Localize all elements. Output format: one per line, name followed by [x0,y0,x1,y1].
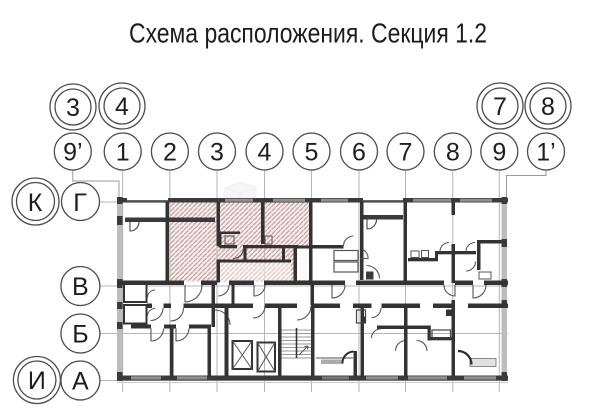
svg-text:8: 8 [446,139,460,167]
svg-text:6: 6 [352,139,366,167]
svg-text:9: 9 [492,139,506,167]
svg-text:8: 8 [541,93,555,121]
svg-text:7: 7 [493,93,507,121]
svg-text:4: 4 [258,139,272,167]
svg-text:И: И [28,367,46,395]
svg-text:Г: Г [73,189,87,217]
svg-text:3: 3 [210,139,224,167]
svg-text:К: К [28,189,43,217]
svg-text:7: 7 [399,139,413,167]
svg-text:А: А [72,368,89,396]
svg-text:9’: 9’ [63,139,82,167]
svg-text:5: 5 [305,139,319,167]
svg-text:1: 1 [116,139,130,167]
svg-text:В: В [72,273,89,301]
svg-text:Б: Б [72,321,88,349]
svg-text:2: 2 [163,139,177,167]
svg-text:4: 4 [115,93,129,121]
svg-text:3: 3 [66,94,80,122]
svg-text:1’: 1’ [536,139,555,167]
svg-text:Схема расположения. Секция 1.2: Схема расположения. Секция 1.2 [129,18,487,49]
